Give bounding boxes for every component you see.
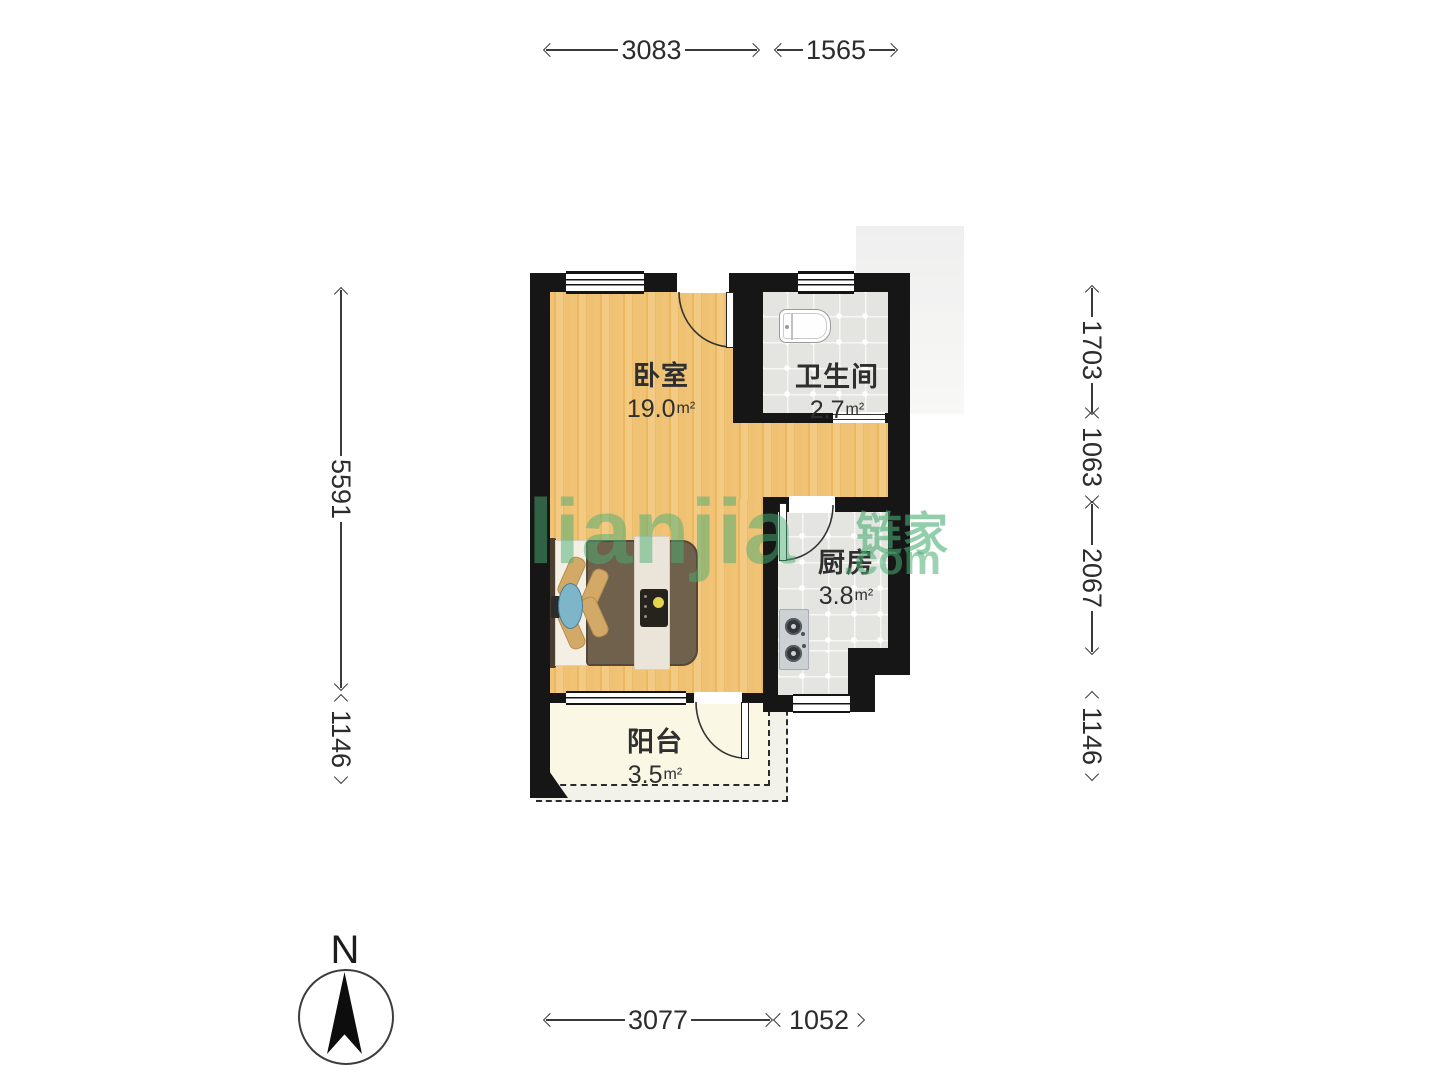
- tray-pip: [644, 615, 647, 618]
- room-name: 卧室: [627, 354, 695, 393]
- dim-arrow: [776, 1019, 786, 1021]
- dimension-value: 3083: [621, 34, 681, 66]
- dim-arrow: [852, 1019, 862, 1021]
- stove: [779, 609, 809, 670]
- bathtub-divider: [791, 314, 793, 340]
- dimension-top-1: 3083: [546, 34, 757, 66]
- room-name: 厨房: [818, 541, 874, 580]
- door-leaf-bedroom: [726, 292, 734, 348]
- dim-arrow: [340, 290, 342, 456]
- dim-arrow: [691, 1019, 770, 1021]
- dimension-value: 5591: [325, 459, 357, 519]
- tray-lamp-icon: [653, 597, 664, 608]
- dimension-value: 2067: [1076, 548, 1108, 608]
- room-label-bathroom: 卫生间 2.7m²: [795, 355, 879, 425]
- stove-burner-icon: [785, 645, 802, 662]
- dimension-value: 1565: [806, 34, 866, 66]
- dimension-top-2: 1565: [777, 34, 895, 66]
- dim-arrow: [546, 49, 618, 51]
- dim-arrow: [777, 49, 803, 51]
- floorplan-canvas: 卧室 19.0m² 卫生间 2.7m² 厨房 3.8m² 阳台 3.5m² 30…: [0, 0, 1440, 1080]
- dim-arrow: [1091, 288, 1093, 317]
- dimension-value: 1703: [1076, 320, 1108, 380]
- dimension-right-3: 2067: [1076, 504, 1108, 652]
- dim-arrow: [340, 522, 342, 688]
- dimension-right-2: 1063: [1076, 414, 1108, 502]
- doorway-kitchen: [789, 496, 835, 513]
- wall-right: [888, 273, 910, 675]
- dimension-value: 1146: [325, 710, 357, 768]
- dim-arrow: [685, 49, 757, 51]
- room-label-balcony: 阳台 3.5m²: [627, 720, 683, 790]
- bedside-stool: [558, 583, 583, 629]
- dimension-value: 1052: [789, 1004, 849, 1036]
- bathtub-drain: [785, 325, 789, 329]
- room-area: 3.8m²: [818, 582, 874, 611]
- tray-pip: [644, 595, 647, 598]
- window-balcony: [566, 691, 686, 705]
- dimension-value: 3077: [628, 1004, 688, 1036]
- wall-kitchen-step-v: [848, 648, 875, 712]
- wall-left: [530, 273, 550, 778]
- room-area: 2.7m²: [795, 396, 879, 425]
- bed-tray: [640, 589, 668, 627]
- stove-knob: [802, 644, 806, 648]
- stove-burner-icon: [785, 618, 802, 635]
- dim-arrow: [1091, 414, 1093, 424]
- room-label-kitchen: 厨房 3.8m²: [818, 541, 874, 611]
- dim-arrow: [546, 1019, 625, 1021]
- dim-arrow: [1091, 768, 1093, 778]
- dim-arrow: [340, 697, 342, 707]
- dimension-value: 1146: [1076, 707, 1108, 765]
- doorway-bedroom-entry: [677, 272, 729, 293]
- dim-arrow: [1091, 383, 1093, 412]
- dim-arrow: [869, 49, 895, 51]
- window-bathroom-top: [798, 271, 854, 294]
- dim-arrow: [340, 771, 342, 781]
- wall-bathroom-left: [733, 292, 763, 423]
- wall-kitchen-left: [763, 512, 778, 712]
- stove-knob: [801, 632, 805, 636]
- room-label-bedroom: 卧室 19.0m²: [627, 354, 695, 424]
- room-name: 阳台: [627, 720, 683, 759]
- dim-arrow: [1091, 504, 1093, 545]
- room-name: 卫生间: [795, 355, 879, 394]
- dimension-value: 1063: [1076, 427, 1108, 487]
- door-leaf-balcony: [741, 702, 749, 759]
- tray-pip: [644, 605, 647, 608]
- door-leaf-kitchen: [779, 503, 787, 561]
- dimension-bottom-1: 3077: [546, 1004, 770, 1036]
- hall-floor: [733, 421, 890, 499]
- dimension-left-1: 5591: [325, 290, 357, 688]
- dim-arrow: [1091, 611, 1093, 652]
- dim-arrow: [1091, 490, 1093, 500]
- dimension-left-2: 1146: [325, 697, 357, 793]
- window-bedroom-top: [566, 271, 644, 294]
- room-area: 19.0m²: [627, 395, 695, 424]
- compass-north-label: N: [331, 928, 360, 973]
- dimension-bottom-2: 1052: [776, 1004, 862, 1036]
- dim-arrow: [1091, 694, 1093, 704]
- bathtub: [779, 309, 831, 343]
- room-area: 3.5m²: [627, 761, 683, 790]
- dimension-right-4: 1146: [1076, 694, 1108, 790]
- dimension-right-1: 1703: [1076, 288, 1108, 412]
- doorway-balcony: [694, 692, 742, 704]
- window-kitchen-bottom: [793, 694, 850, 713]
